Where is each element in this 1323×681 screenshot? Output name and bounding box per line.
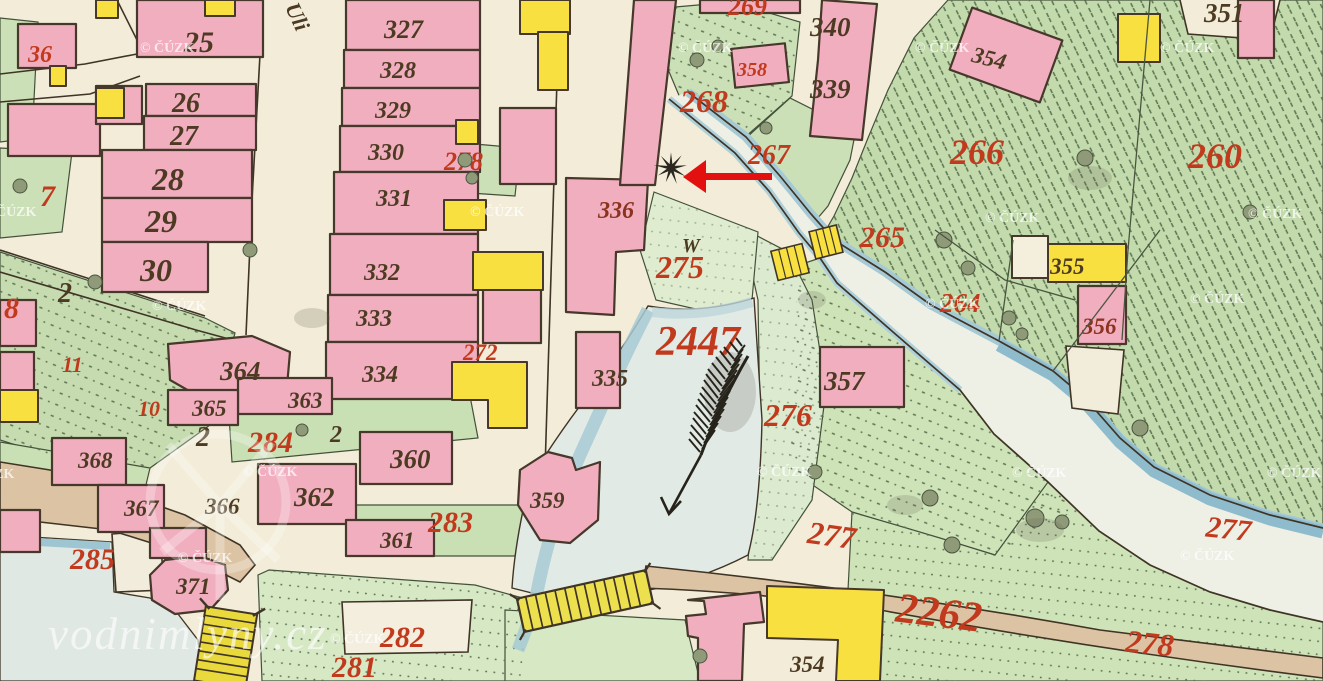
svg-text:340: 340 xyxy=(809,12,851,42)
svg-text:© ČÚZK: © ČÚZK xyxy=(330,630,385,647)
svg-text:281: 281 xyxy=(331,651,377,681)
svg-text:© ČÚZK: © ČÚZK xyxy=(678,39,733,56)
svg-text:11: 11 xyxy=(62,352,83,377)
svg-text:265: 265 xyxy=(859,221,905,254)
svg-text:355: 355 xyxy=(1049,254,1085,279)
svg-text:269: 269 xyxy=(727,0,767,21)
svg-text:354: 354 xyxy=(789,652,825,677)
svg-text:© ČÚZK: © ČÚZK xyxy=(1160,39,1215,56)
svg-text:© ČÚZK: © ČÚZK xyxy=(757,463,812,480)
svg-text:© ČÚZK: © ČÚZK xyxy=(1248,205,1303,222)
svg-text:360: 360 xyxy=(389,444,431,474)
svg-text:266: 266 xyxy=(949,132,1004,172)
svg-text:332: 332 xyxy=(363,260,400,286)
svg-text:335: 335 xyxy=(591,366,628,392)
svg-text:10: 10 xyxy=(138,396,160,421)
svg-text:© ČÚZK: © ČÚZK xyxy=(0,465,15,482)
svg-text:351: 351 xyxy=(1203,0,1245,28)
svg-text:364: 364 xyxy=(219,356,261,386)
svg-text:277: 277 xyxy=(1203,510,1253,548)
svg-text:26: 26 xyxy=(171,88,200,119)
svg-text:363: 363 xyxy=(287,388,323,413)
svg-text:267: 267 xyxy=(747,140,791,171)
svg-text:357: 357 xyxy=(823,366,866,396)
svg-text:362: 362 xyxy=(293,482,335,512)
svg-text:282: 282 xyxy=(379,621,425,654)
svg-text:2: 2 xyxy=(329,422,342,448)
svg-text:29: 29 xyxy=(144,203,177,239)
svg-text:283: 283 xyxy=(427,506,473,539)
svg-text:© ČÚZK: © ČÚZK xyxy=(1180,547,1235,564)
svg-text:260: 260 xyxy=(1187,136,1242,176)
svg-text:368: 368 xyxy=(77,448,113,473)
svg-text:358: 358 xyxy=(736,59,767,81)
svg-text:272: 272 xyxy=(462,340,498,365)
svg-text:7: 7 xyxy=(40,180,56,213)
svg-text:365: 365 xyxy=(191,396,227,421)
svg-text:328: 328 xyxy=(379,58,416,84)
svg-text:285: 285 xyxy=(69,543,115,576)
svg-text:© ČÚZK: © ČÚZK xyxy=(915,39,970,56)
svg-text:268: 268 xyxy=(679,83,728,119)
svg-text:36: 36 xyxy=(27,42,52,68)
svg-text:30: 30 xyxy=(139,252,172,288)
svg-text:361: 361 xyxy=(379,528,415,553)
svg-text:8: 8 xyxy=(4,292,19,325)
svg-text:339: 339 xyxy=(809,74,851,104)
svg-text:2: 2 xyxy=(57,278,72,309)
svg-text:27: 27 xyxy=(169,121,199,152)
svg-text:278: 278 xyxy=(1123,623,1175,664)
svg-text:© ČÚZK: © ČÚZK xyxy=(1267,464,1322,481)
svg-text:327: 327 xyxy=(383,15,424,44)
svg-text:359: 359 xyxy=(529,488,565,513)
svg-text:276: 276 xyxy=(763,397,812,433)
svg-text:© ČÚZK: © ČÚZK xyxy=(1012,464,1067,481)
svg-text:329: 329 xyxy=(374,98,411,124)
svg-text:© ČÚZK: © ČÚZK xyxy=(152,297,207,314)
svg-text:371: 371 xyxy=(175,574,211,599)
svg-text:© ČÚZK: © ČÚZK xyxy=(985,209,1040,226)
svg-text:© ČÚZK: © ČÚZK xyxy=(0,203,37,220)
svg-text:W: W xyxy=(682,235,701,257)
svg-text:333: 333 xyxy=(355,306,392,332)
svg-text:277: 277 xyxy=(805,514,861,557)
svg-text:© ČÚZK: © ČÚZK xyxy=(1190,290,1245,307)
svg-text:28: 28 xyxy=(151,161,184,197)
svg-text:© ČÚZK: © ČÚZK xyxy=(470,203,525,220)
svg-text:330: 330 xyxy=(367,140,404,166)
svg-text:336: 336 xyxy=(597,198,634,224)
svg-text:331: 331 xyxy=(375,186,412,212)
svg-text:vodnimlyny.cz: vodnimlyny.cz xyxy=(48,609,328,659)
svg-text:© ČÚZK: © ČÚZK xyxy=(925,295,980,312)
svg-text:© ČÚZK: © ČÚZK xyxy=(140,39,195,56)
svg-text:334: 334 xyxy=(361,362,398,388)
